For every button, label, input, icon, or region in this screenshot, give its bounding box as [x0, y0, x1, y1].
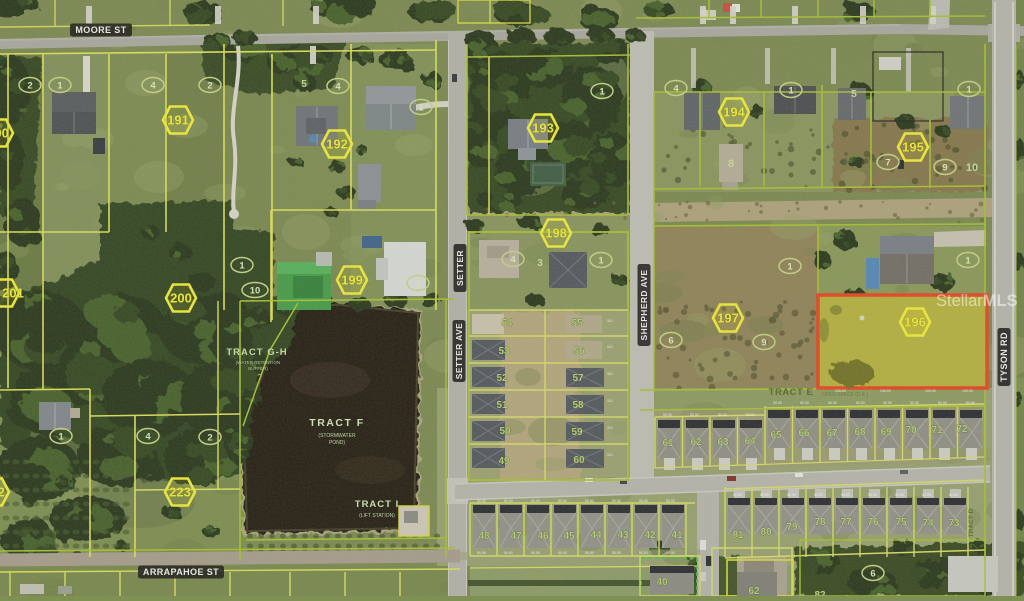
svg-text:StellarMLS: StellarMLS — [936, 292, 1018, 310]
